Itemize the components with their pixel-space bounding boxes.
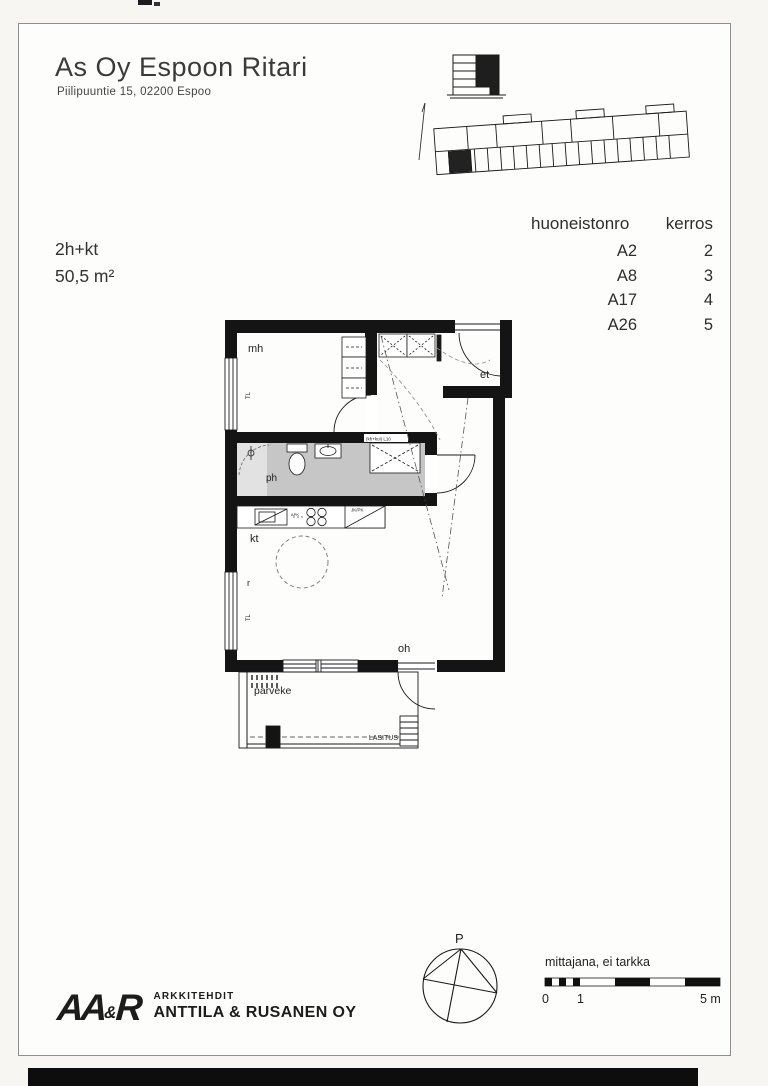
site-plan-drawing	[408, 45, 708, 180]
logo-line-arkkitehdit: ARKKITEHDIT	[153, 991, 356, 1002]
compass-north-label: P	[455, 931, 464, 946]
scan-artifact	[154, 2, 160, 6]
balcony-door	[398, 660, 437, 709]
building-elevation-icon	[447, 55, 506, 98]
washer-tag: (kh+kui) L10	[366, 437, 391, 442]
compass	[423, 949, 497, 1023]
unit-id: A26	[531, 313, 637, 338]
footer-graphics: P mittajana, ei tarkka 0 1 5 m	[408, 928, 738, 1033]
site-plan-north-line	[419, 103, 425, 160]
stove	[307, 508, 315, 516]
architect-logo: AA&R ARKKITEHDIT ANTTILA & RUSANEN OY	[57, 991, 356, 1030]
logo-monogram: AA&R	[56, 991, 141, 1030]
scan-artifact-band	[28, 1068, 698, 1086]
dishwasher-tag: APK	[291, 512, 299, 517]
glazing-tag: LASITUS	[369, 735, 399, 742]
unit-floor: 2	[637, 239, 713, 264]
unit-table-header-floor: kerros	[666, 214, 713, 234]
room-label-bathroom: ph	[266, 473, 277, 484]
room-label-dining: r	[247, 578, 250, 588]
unit-table-header-apartment: huoneistonro	[531, 214, 629, 234]
room-label-bedroom: mh	[248, 343, 263, 355]
room-label-entry: et	[480, 369, 489, 381]
unit-table-row: A26 5	[531, 313, 713, 338]
glazing-detail-box	[400, 716, 418, 746]
walls	[225, 320, 512, 672]
scan-artifact	[138, 0, 152, 5]
window-tag-tl: TL	[246, 391, 252, 399]
logo-line-company: ANTTILA & RUSANEN OY	[153, 1004, 356, 1022]
logo-r: R	[115, 987, 142, 1028]
unit-id: A17	[531, 288, 637, 313]
room-label-kitchen: kt	[250, 533, 259, 545]
highlighted-unit	[448, 150, 471, 172]
logo-aa: AA	[56, 987, 106, 1028]
page-address: Piilipuuntie 15, 02200 Espoo	[57, 86, 211, 98]
scale-bar: mittajana, ei tarkka 0 1 5 m	[542, 955, 721, 1006]
unit-table-row: A17 4	[531, 288, 713, 313]
scale-tick-0: 0	[542, 992, 549, 1006]
apartment-info: 2h+kt 50,5 m²	[55, 236, 114, 290]
entry-door	[455, 320, 502, 376]
site-plan-building	[433, 103, 689, 175]
unit-id: A8	[531, 264, 637, 289]
scanned-floor-plan-page: As Oy Espoon Ritari Piilipuuntie 15, 022…	[0, 0, 768, 1086]
unit-table-row: A2 2	[531, 239, 713, 264]
bathroom-door	[425, 455, 475, 493]
room-label-balcony: parveke	[254, 685, 292, 697]
unit-floor: 4	[637, 288, 713, 313]
floor-plan-drawing: mh et ph kt r oh parveke TL TL (kh+kui) …	[215, 310, 530, 770]
room-label-living: oh	[398, 643, 410, 655]
apartment-area: 50,5 m²	[55, 263, 114, 290]
fridge-tag: JK/PK	[351, 508, 364, 513]
unit-id: A2	[531, 239, 637, 264]
page-title: As Oy Espoon Ritari	[55, 52, 308, 83]
scale-tick-5m: 5 m	[700, 992, 721, 1006]
wardrobes	[342, 334, 441, 398]
unit-floor: 3	[637, 264, 713, 289]
unit-table-row: A8 3	[531, 264, 713, 289]
dining-table-outline	[276, 536, 328, 588]
bedroom-door	[334, 395, 377, 432]
apartment-type: 2h+kt	[55, 236, 114, 263]
unit-floor: 5	[637, 313, 713, 338]
window-tag-tl: TL	[246, 613, 252, 621]
scale-bar-label: mittajana, ei tarkka	[545, 955, 650, 969]
unit-table: huoneistonro kerros A2 2 A8 3 A17 4 A26 …	[531, 214, 713, 337]
scale-tick-1: 1	[577, 992, 584, 1006]
